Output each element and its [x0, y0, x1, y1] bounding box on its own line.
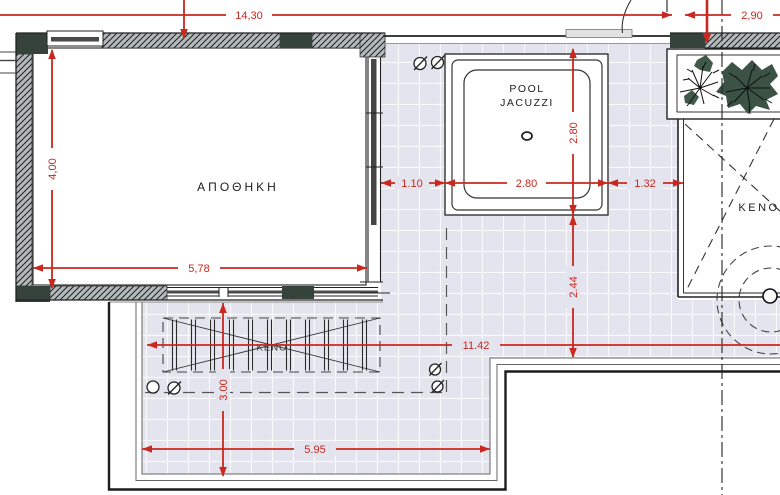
dim-top-total: 14,30 — [235, 10, 263, 22]
dim-pool-to-step: 2.44 — [568, 276, 580, 297]
dim-pool-offset-left: 1.10 — [401, 178, 422, 190]
top-right-wall — [670, 33, 780, 48]
column-top-left — [16, 33, 48, 54]
wall-left-hatch — [16, 54, 32, 286]
dim-pool-offset-right: 1.32 — [634, 178, 655, 190]
column-top-mid — [280, 33, 312, 48]
dim-pergola-depth: 3.00 — [218, 379, 230, 400]
dim-terrace-length: 11.42 — [463, 340, 490, 352]
wall-top-hatch-1 — [102, 33, 280, 48]
floor-plan-page: ΑΠΟΘΗΚΗ ΚΕΝΟ — [0, 0, 780, 495]
column-circle — [763, 289, 777, 303]
pool-label-line2: JACUZZI — [500, 97, 554, 109]
left-edge-stubs — [0, 52, 16, 73]
storage-room-floor — [33, 48, 366, 285]
storage-label: ΑΠΟΘΗΚΗ — [197, 180, 279, 194]
window-top-left — [47, 31, 103, 46]
dim-storage-width: 5,78 — [188, 263, 209, 275]
pool-jacuzzi: POOL JACUZZI — [445, 54, 608, 215]
wall-corner-hatch — [360, 33, 385, 57]
pool-label-line1: POOL — [509, 83, 544, 95]
dim-pool-width: 2.80 — [516, 178, 537, 190]
window-bottom-2 — [314, 288, 378, 297]
pool-drain-icon — [522, 132, 532, 140]
dim-lower-terrace-length: 5.95 — [304, 444, 325, 456]
light-icon — [147, 381, 159, 393]
planter — [667, 49, 780, 119]
dim-top-right: 2,90 — [741, 10, 762, 22]
wall-bottom-hatch — [50, 286, 167, 300]
door-swing-arc — [622, 0, 631, 33]
floor-plan-canvas: ΑΠΟΘΗΚΗ ΚΕΝΟ — [0, 0, 780, 495]
window-bottom-1 — [167, 287, 282, 297]
dim-storage-height: 4,00 — [47, 158, 59, 179]
column-bottom-mid — [282, 286, 314, 299]
void-label: ΚΕΝΟ — [738, 202, 779, 214]
dim-pool-depth: 2.80 — [568, 122, 580, 143]
column-top-right — [670, 33, 705, 48]
